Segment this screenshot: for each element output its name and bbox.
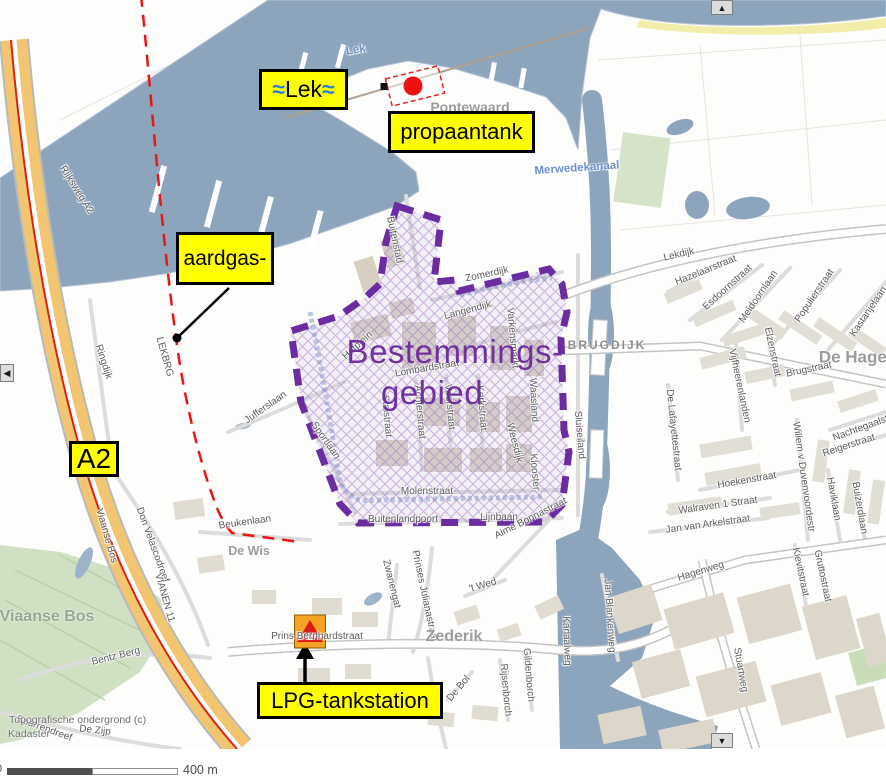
scalebar-label: 400 m: [183, 763, 218, 777]
scalebar-zero: 0: [0, 763, 2, 775]
boundary-label-line2: gebied: [381, 374, 483, 412]
wave-icon: ≈: [322, 76, 335, 103]
callout-lek-text: Lek: [285, 76, 322, 103]
wave-icon: ≈: [272, 76, 285, 103]
pan-down-button[interactable]: ▼: [711, 733, 733, 748]
arrow-left-icon: ◀: [4, 368, 11, 379]
pan-left-button[interactable]: ◀: [0, 364, 14, 382]
scale-area: 0 400 m: [0, 749, 886, 784]
boundary-label-line1: Bestemmings-: [347, 333, 564, 371]
arrow-up-icon: ▲: [718, 3, 727, 13]
pan-up-button[interactable]: ▲: [711, 0, 733, 15]
callout-lek: ≈Lek≈: [259, 69, 348, 110]
callout-lpg-tankstation: LPG-tankstation: [257, 682, 443, 719]
copyright-line2: Kadaster: [8, 728, 50, 740]
lpg-station-icon: L: [295, 615, 326, 648]
svg-text:L: L: [307, 632, 313, 643]
callout-aardgas: aardgas-: [176, 232, 274, 285]
map-viewport[interactable]: L Rijksweg A2LEKBRGRingdijkViaanse BosDo…: [0, 0, 886, 750]
scalebar-dark-segment: [7, 768, 92, 775]
copyright-line1: Topografische ondergrond (c): [9, 714, 146, 726]
map-application: L Rijksweg A2LEKBRGRingdijkViaanse BosDo…: [0, 0, 886, 784]
callout-propaantank: propaantank: [388, 111, 535, 153]
arrow-down-icon: ▼: [718, 736, 727, 746]
scalebar-light-segment: [92, 768, 178, 775]
callout-a2: A2: [69, 441, 119, 477]
